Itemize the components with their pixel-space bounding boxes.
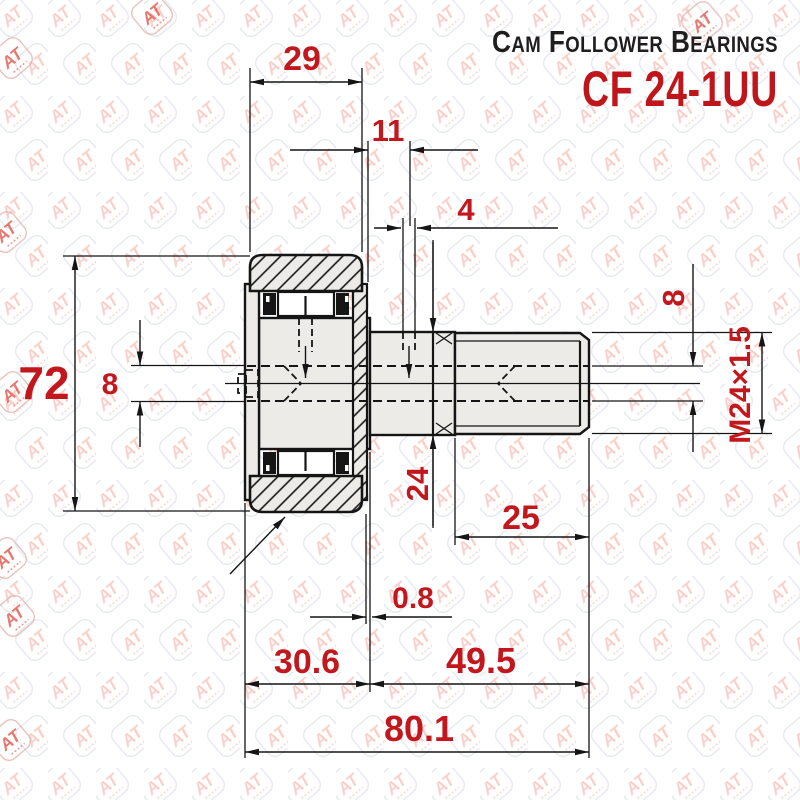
side-plate-left xyxy=(245,284,259,500)
dim-overall-length: 80.1 xyxy=(384,708,454,749)
page-title: Cam Follower Bearings xyxy=(492,24,778,59)
dim-lube-hole-diameter: 4 xyxy=(457,192,475,227)
dim-thread-length: 25 xyxy=(502,499,540,537)
seal-notch xyxy=(345,465,349,471)
seal-notch xyxy=(266,465,270,471)
seal-notch xyxy=(345,296,349,302)
dim-axial-bore-left: 8 xyxy=(102,368,119,401)
outer-ring-top-section xyxy=(250,255,362,291)
dim-thread-spec: M24×1.5 xyxy=(724,326,757,444)
outer-ring-bottom-section xyxy=(250,476,362,512)
dim-axial-bore-right: 8 xyxy=(656,289,691,306)
seal-notch xyxy=(266,296,270,302)
side-plate-right xyxy=(353,284,367,500)
dim-face-offset: 0.8 xyxy=(392,582,434,615)
model-number: CF 24-1UU xyxy=(582,61,778,117)
dim-outer-ring-width: 29 xyxy=(283,40,321,78)
bearing-drawing-canvas: AT AT xyxy=(0,0,800,800)
dim-lube-hole-position: 11 xyxy=(372,113,405,148)
dim-bearing-width: 30.6 xyxy=(274,643,340,681)
dim-outer-diameter: 72 xyxy=(18,357,69,409)
dim-stud-diameter: 24 xyxy=(400,466,435,501)
dim-stud-length: 49.5 xyxy=(446,640,516,681)
